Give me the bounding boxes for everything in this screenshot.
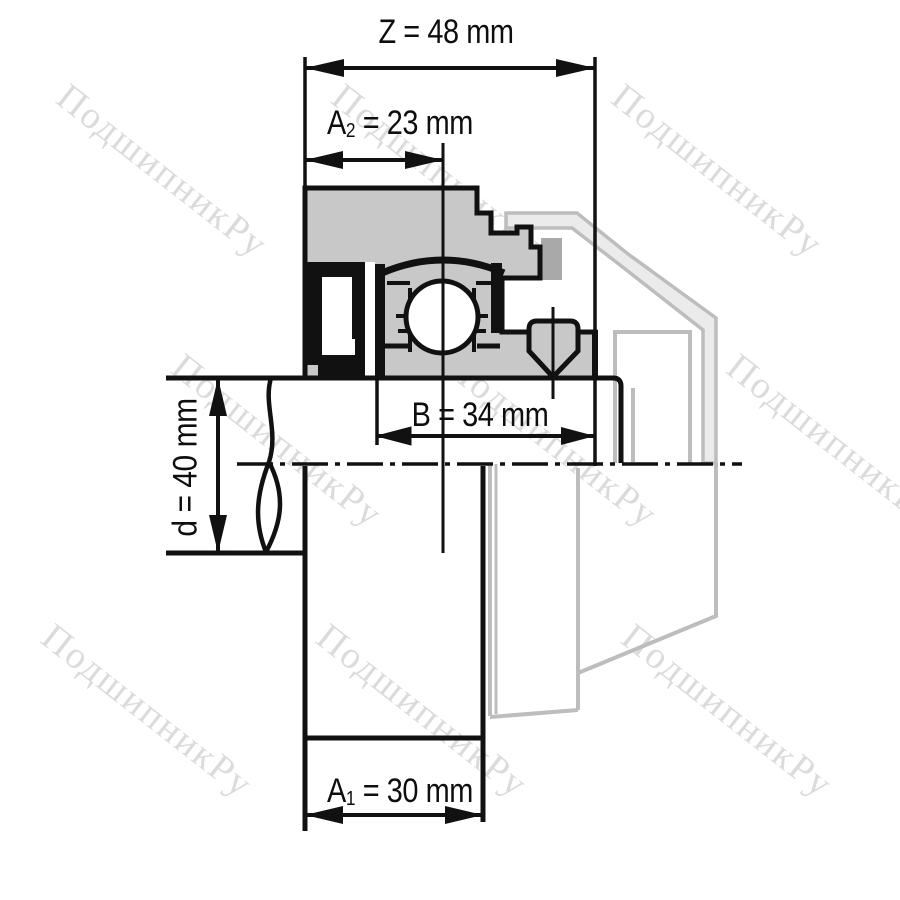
dim-value-text: = 30 mm [355, 772, 473, 810]
dim-value-text: = 40 mm [166, 398, 204, 520]
end-cap-section [305, 262, 385, 378]
ghost-section-block [541, 238, 562, 280]
dim-label-d: d = 40 mm [166, 393, 205, 543]
shaft-break-lens [258, 462, 280, 552]
dim-subscript: 1 [346, 788, 355, 810]
z-arrow-left [305, 59, 344, 77]
left-seal [375, 264, 385, 378]
shaft-break-curve [269, 378, 273, 462]
dim-value-text: = 48 mm [396, 13, 514, 51]
a2-arrow-left [305, 151, 343, 169]
dim-letter: B [412, 396, 431, 434]
dim-value-text: = 23 mm [355, 104, 473, 142]
bearing-dimension-drawing: ПодшипникРу ПодшипникРу ПодшипникРу Подш… [0, 0, 900, 900]
d-arrow-bottom [209, 515, 227, 553]
dim-value-text: = 34 mm [430, 396, 548, 434]
right-seal [491, 263, 502, 333]
ghost-lower-bottom [490, 710, 578, 717]
setscrew [529, 307, 578, 399]
a2-arrow-right [405, 151, 443, 169]
dim-letter: d [166, 520, 204, 536]
dim-label-b: B = 34 mm [395, 396, 565, 435]
z-arrow-right [556, 59, 595, 77]
dim-label-z: Z = 48 mm [361, 13, 531, 52]
dim-subscript: 2 [346, 120, 355, 142]
dim-label-a1: A1 = 30 mm [315, 772, 485, 811]
ghost-window [615, 332, 690, 463]
d-arrow-top [209, 378, 227, 416]
dimension-a2 [305, 151, 443, 169]
dim-label-a2: A2 = 23 mm [315, 104, 485, 143]
ghost-lower-slant [578, 463, 716, 673]
dim-letter: A [327, 104, 346, 142]
dim-letter: Z [378, 13, 395, 51]
end-cap-cavity [322, 277, 355, 355]
b-arrow-right [561, 427, 595, 445]
dim-letter: A [327, 772, 346, 810]
cap-gap [365, 262, 375, 378]
